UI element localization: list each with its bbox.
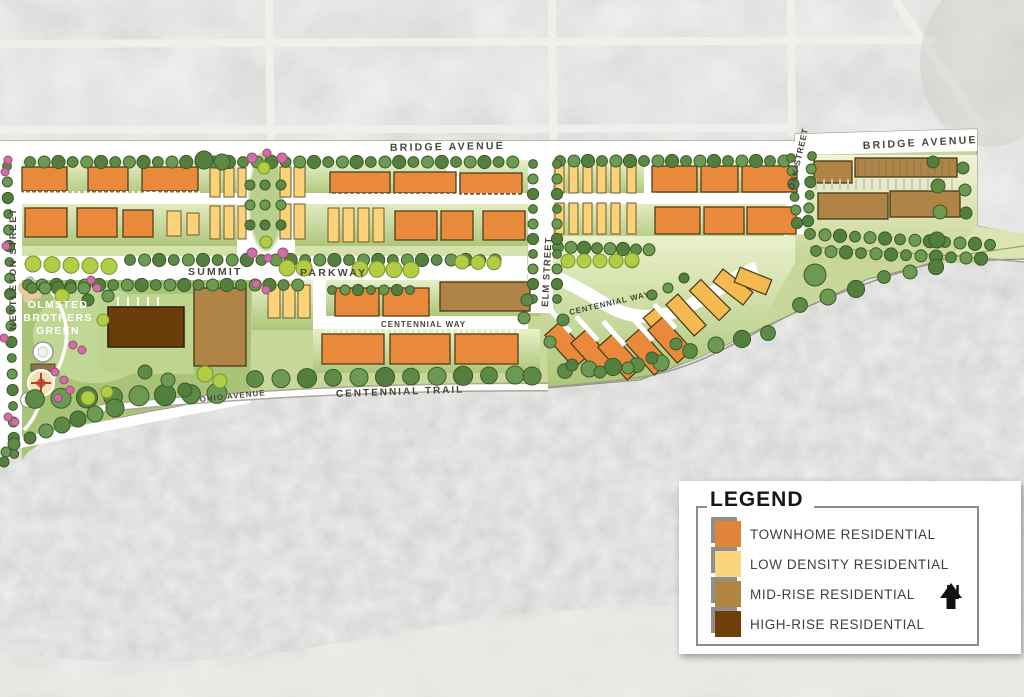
driveway-tick — [343, 323, 345, 333]
driveway-tick — [899, 161, 901, 175]
tree-icon — [749, 154, 762, 167]
tree-icon — [236, 280, 247, 291]
tree-icon — [609, 254, 623, 268]
driveway-tick — [658, 193, 660, 203]
legend-title: LEGEND — [707, 488, 814, 512]
tree-icon — [272, 370, 290, 388]
tree-icon — [137, 155, 150, 168]
tree-icon — [895, 234, 906, 245]
street-label-centennial-way-west: CENTENNIAL WAY — [381, 320, 466, 329]
driveway-tick — [730, 193, 732, 203]
tree-icon — [819, 229, 831, 241]
tree-icon — [0, 334, 8, 342]
legend-rows: TOWNHOME RESIDENTIAL LOW DENSITY RESIDEN… — [715, 521, 949, 641]
driveway-tick — [60, 191, 62, 202]
tree-icon — [193, 280, 204, 291]
tree-icon — [1, 447, 11, 457]
tree-icon — [325, 369, 342, 386]
driveway-tick — [402, 193, 404, 203]
driveway-tick — [325, 323, 327, 333]
driveway-tick — [772, 193, 774, 203]
legend-row-high-rise: HIGH-RISE RESIDENTIAL — [715, 611, 949, 637]
tree-icon — [791, 217, 802, 228]
tree-icon — [78, 346, 86, 354]
tree-icon — [7, 369, 17, 379]
tree-icon — [350, 155, 363, 168]
tree-icon — [577, 241, 590, 254]
tree-icon — [802, 215, 813, 226]
tree-icon — [94, 155, 107, 168]
driveway-tick — [670, 193, 672, 203]
tree-icon — [506, 366, 524, 384]
tree-icon — [527, 188, 538, 199]
driveway-tick — [192, 191, 194, 202]
driveway-tick — [676, 193, 678, 203]
tree-icon — [4, 156, 12, 164]
legend-label: MID-RISE RESIDENTIAL — [750, 587, 915, 602]
tree-icon — [39, 282, 51, 294]
tree-icon — [453, 366, 472, 385]
tree-icon — [260, 236, 272, 248]
tree-icon — [78, 282, 90, 294]
driveway-tick — [724, 193, 726, 203]
legend-panel: LEGEND TOWNHOME RESIDENTIAL LOW DENSITY … — [679, 481, 1021, 654]
tree-icon — [0, 457, 9, 467]
tree-icon — [985, 239, 996, 250]
street-label-summit: SUMMIT — [188, 266, 243, 278]
tree-icon — [552, 174, 562, 184]
driveway-tick — [906, 161, 908, 175]
tree-icon — [38, 156, 50, 168]
north-arrow: N — [939, 583, 967, 603]
driveway-tick — [102, 191, 104, 202]
tree-icon — [597, 156, 608, 167]
tree-icon — [625, 253, 639, 267]
tree-icon — [805, 229, 816, 240]
tree-icon — [81, 391, 95, 405]
driveway-tick — [156, 191, 158, 202]
tree-icon — [93, 284, 101, 292]
tree-icon — [864, 232, 876, 244]
tree-icon — [487, 256, 501, 270]
tree-icon — [7, 354, 16, 363]
driveway-tick — [516, 193, 518, 203]
tree-icon — [646, 352, 658, 364]
driveway-tick — [892, 161, 894, 175]
driveway-tick — [426, 193, 428, 203]
tree-icon — [44, 257, 60, 273]
tree-icon — [226, 254, 238, 266]
driveway-tick — [30, 191, 32, 202]
driveway-tick — [718, 193, 720, 203]
tree-icon — [154, 384, 175, 405]
tree-icon — [2, 177, 12, 187]
driveway-tick — [694, 193, 696, 203]
driveway-tick — [78, 191, 80, 202]
tree-icon — [314, 254, 326, 266]
tree-icon — [478, 155, 491, 168]
driveway-tick — [700, 193, 702, 203]
driveway-tick — [948, 161, 950, 175]
tree-icon — [276, 200, 286, 210]
tree-icon — [245, 200, 255, 210]
tree-icon — [708, 337, 724, 353]
legend-row-mid-rise: MID-RISE RESIDENTIAL — [715, 581, 949, 607]
townhome-swatch — [715, 521, 741, 547]
tree-icon — [683, 344, 698, 359]
driveway-tick — [760, 193, 762, 203]
tree-icon — [553, 160, 562, 169]
driveway-tick — [331, 323, 333, 333]
tree-icon — [403, 262, 419, 278]
park-label-line3: GREEN — [36, 325, 80, 337]
driveway-tick — [367, 323, 369, 333]
tree-icon — [7, 384, 18, 395]
driveway-tick — [487, 323, 489, 333]
driveway-tick — [864, 161, 866, 175]
driveway-tick — [420, 193, 422, 203]
tree-icon — [804, 264, 826, 286]
tree-icon — [168, 255, 179, 266]
tree-icon — [323, 157, 334, 168]
mid-rise-swatch — [715, 581, 741, 607]
tree-icon — [82, 258, 98, 274]
driveway-tick — [378, 193, 380, 203]
tree-icon — [518, 312, 530, 324]
tree-icon — [528, 219, 538, 229]
tree-icon — [25, 256, 41, 272]
driveway-tick — [42, 191, 44, 202]
tree-icon — [850, 231, 861, 242]
tree-icon — [207, 279, 219, 291]
tree-icon — [805, 191, 814, 200]
tree-icon — [670, 338, 682, 350]
tree-icon — [723, 156, 734, 167]
driveway-tick — [108, 191, 110, 202]
driveway-tick — [863, 179, 865, 190]
driveway-tick — [778, 193, 780, 203]
tree-icon — [928, 259, 943, 274]
tree-icon — [959, 184, 971, 196]
driveway-tick — [927, 179, 929, 190]
tree-icon — [791, 205, 801, 215]
tree-icon — [594, 366, 606, 378]
street-label-bridge-avenue-west: BRIDGE AVENUE — [390, 140, 505, 154]
tree-icon — [566, 359, 578, 371]
tree-icon — [63, 257, 79, 273]
tree-icon — [101, 258, 117, 274]
driveway-tick — [126, 191, 128, 202]
tree-icon — [139, 254, 151, 266]
driveway-tick — [784, 193, 786, 203]
driveway-tick — [499, 323, 501, 333]
tree-icon — [455, 255, 469, 269]
driveway-tick — [456, 193, 458, 203]
tree-icon — [557, 314, 569, 326]
driveway-tick — [706, 193, 708, 203]
tree-icon — [856, 248, 867, 259]
legend-row-low-density: LOW DENSITY RESIDENTIAL — [715, 551, 949, 577]
driveway-tick — [150, 191, 152, 202]
driveway-tick — [742, 193, 744, 203]
tree-icon — [610, 155, 622, 167]
driveway-tick — [162, 191, 164, 202]
tree-icon — [391, 284, 402, 295]
tree-icon — [220, 278, 233, 291]
driveway-tick — [885, 161, 887, 175]
driveway-tick — [360, 193, 362, 203]
buildings-high-rise — [108, 307, 184, 347]
tree-icon — [375, 367, 394, 386]
tree-icon — [847, 280, 864, 297]
low-density-swatch — [715, 551, 741, 577]
driveway-tick — [871, 161, 873, 175]
tree-icon — [552, 219, 562, 229]
tree-icon — [761, 326, 776, 341]
tree-icon — [352, 284, 363, 295]
tree-icon — [247, 153, 257, 163]
driveway-tick — [748, 193, 750, 203]
tree-icon — [553, 295, 562, 304]
driveway-tick — [510, 193, 512, 203]
tree-icon — [960, 207, 972, 219]
tree-icon — [403, 368, 420, 385]
tree-icon — [974, 252, 987, 265]
driveway-tick — [951, 179, 953, 190]
tree-icon — [247, 248, 257, 258]
driveway-tick — [120, 191, 122, 202]
driveway-tick — [157, 297, 159, 306]
driveway-tick — [72, 191, 74, 202]
driveway-tick — [132, 191, 134, 202]
street-label-nettleton: NETTLETON STREET — [8, 207, 19, 330]
tree-icon — [379, 156, 391, 168]
driveway-tick — [144, 191, 146, 202]
tree-icon — [464, 156, 476, 168]
tree-icon — [252, 280, 260, 288]
tree-icon — [110, 157, 121, 168]
tree-icon — [577, 254, 591, 268]
driveway-tick — [414, 193, 416, 203]
driveway-tick — [84, 191, 86, 202]
tree-icon — [565, 241, 577, 253]
tree-icon — [507, 156, 519, 168]
tree-icon — [264, 254, 272, 262]
driveway-tick — [480, 193, 482, 203]
tree-icon — [527, 233, 538, 244]
tree-icon — [527, 278, 538, 289]
driveway-tick — [486, 193, 488, 203]
tree-icon — [679, 273, 689, 283]
driveway-tick — [522, 193, 524, 203]
tree-icon — [166, 156, 178, 168]
legend-label: TOWNHOME RESIDENTIAL — [750, 527, 936, 542]
driveway-tick — [664, 193, 666, 203]
driveway-tick — [493, 323, 495, 333]
tree-icon — [121, 279, 133, 291]
driveway-tick — [903, 179, 905, 190]
tree-icon — [279, 260, 295, 276]
driveway-tick — [511, 323, 513, 333]
tree-icon — [915, 250, 927, 262]
driveway-tick — [361, 323, 363, 333]
driveway-tick — [408, 193, 410, 203]
driveway-tick — [48, 191, 50, 202]
tree-icon — [195, 151, 213, 169]
driveway-tick — [174, 191, 176, 202]
driveway-tick — [396, 193, 398, 203]
driveway-tick — [342, 193, 344, 203]
driveway-tick — [831, 179, 833, 190]
tree-icon — [933, 205, 947, 219]
driveway-tick — [688, 193, 690, 203]
tree-icon — [552, 264, 562, 274]
driveway-tick — [887, 179, 889, 190]
tree-icon — [138, 365, 152, 379]
tree-icon — [245, 220, 255, 230]
tree-icon — [616, 242, 629, 255]
driveway-tick — [137, 297, 139, 306]
tree-icon — [604, 358, 621, 375]
tree-icon — [878, 232, 891, 245]
tree-icon — [258, 162, 270, 174]
driveway-tick — [336, 193, 338, 203]
driveway-tick — [186, 191, 188, 202]
street-connector — [313, 276, 326, 319]
tree-icon — [60, 376, 68, 384]
tree-icon — [135, 278, 148, 291]
tree-icon — [11, 418, 19, 426]
tree-icon — [81, 156, 93, 168]
driveway-tick — [504, 193, 506, 203]
driveway-tick — [468, 193, 470, 203]
tree-icon — [106, 399, 124, 417]
driveway-tick — [505, 323, 507, 333]
driveway-tick — [652, 193, 654, 203]
tree-icon — [150, 280, 161, 291]
tree-icon — [790, 193, 799, 202]
tree-icon — [294, 156, 306, 168]
tree-icon — [247, 371, 264, 388]
tree-icon — [276, 220, 286, 230]
driveway-tick — [330, 193, 332, 203]
driveway-tick — [462, 193, 464, 203]
tree-icon — [182, 254, 194, 266]
tree-icon — [365, 157, 376, 168]
tree-icon — [805, 176, 816, 187]
tree-icon — [593, 254, 607, 268]
tree-icon — [344, 255, 355, 266]
driveway-tick — [517, 323, 519, 333]
tree-icon — [431, 255, 442, 266]
tree-icon — [260, 180, 270, 190]
tree-icon — [639, 156, 650, 167]
legend-row-townhome: TOWNHOME RESIDENTIAL — [715, 521, 949, 547]
site-plan-screenshot: BRIDGE AVENUE BRIDGE AVENUE SUMMIT PARKW… — [0, 0, 1024, 697]
tree-icon — [622, 362, 634, 374]
north-arrow-icon — [939, 583, 963, 609]
tree-icon — [340, 285, 350, 295]
tree-icon — [681, 156, 692, 167]
tree-icon — [328, 286, 337, 295]
tree-icon — [960, 252, 972, 264]
tree-icon — [297, 369, 316, 388]
tree-icon — [529, 250, 538, 259]
tree-icon — [350, 368, 368, 386]
park-label-line2: BROTHERS — [23, 312, 92, 324]
tree-icon — [102, 290, 114, 302]
driveway-tick — [736, 193, 738, 203]
tree-icon — [263, 149, 271, 157]
tree-icon — [833, 229, 846, 242]
tree-icon — [39, 424, 53, 438]
tree-icon — [553, 205, 562, 214]
tree-icon — [804, 203, 814, 213]
tree-icon — [197, 366, 213, 382]
tree-icon — [435, 155, 448, 168]
tree-icon — [528, 174, 538, 184]
tree-icon — [968, 237, 981, 250]
tree-icon — [523, 367, 541, 385]
driveway-tick — [712, 193, 714, 203]
driveway-tick — [682, 193, 684, 203]
driveway-tick — [911, 179, 913, 190]
driveway-tick — [855, 179, 857, 190]
tree-icon — [903, 265, 917, 279]
tree-icon — [69, 341, 77, 349]
tree-icon — [129, 386, 149, 406]
tree-icon — [733, 330, 750, 347]
tree-icon — [878, 271, 891, 284]
tree-icon — [67, 157, 78, 168]
tree-icon — [87, 406, 103, 422]
driveway-tick — [871, 179, 873, 190]
tree-icon — [521, 294, 533, 306]
tree-icon — [909, 234, 921, 246]
driveway-tick — [337, 323, 339, 333]
driveway-tick — [180, 191, 182, 202]
tree-icon — [153, 253, 166, 266]
tree-icon — [336, 156, 348, 168]
driveway-tick — [474, 193, 476, 203]
tree-icon — [793, 298, 808, 313]
tree-icon — [901, 250, 912, 261]
tree-icon — [765, 156, 776, 167]
driveway-tick — [36, 191, 38, 202]
tree-icon — [26, 390, 45, 409]
tree-icon — [386, 262, 402, 278]
tree-icon — [51, 368, 59, 376]
tree-icon — [663, 283, 673, 293]
tree-icon — [825, 246, 837, 258]
tree-icon — [2, 192, 13, 203]
driveway-tick — [432, 193, 434, 203]
driveway-tick — [450, 193, 452, 203]
tree-icon — [623, 154, 636, 167]
tree-icon — [811, 246, 822, 257]
tree-icon — [408, 157, 419, 168]
tree-icon — [393, 155, 406, 168]
driveway-tick — [475, 323, 477, 333]
tree-icon — [367, 286, 376, 295]
tree-icon — [178, 383, 192, 397]
driveway-tick — [847, 179, 849, 190]
driveway-tick — [24, 191, 26, 202]
tree-icon — [592, 243, 603, 254]
tree-icon — [213, 374, 227, 388]
driveway-tick — [66, 191, 68, 202]
tree-icon — [652, 155, 664, 167]
